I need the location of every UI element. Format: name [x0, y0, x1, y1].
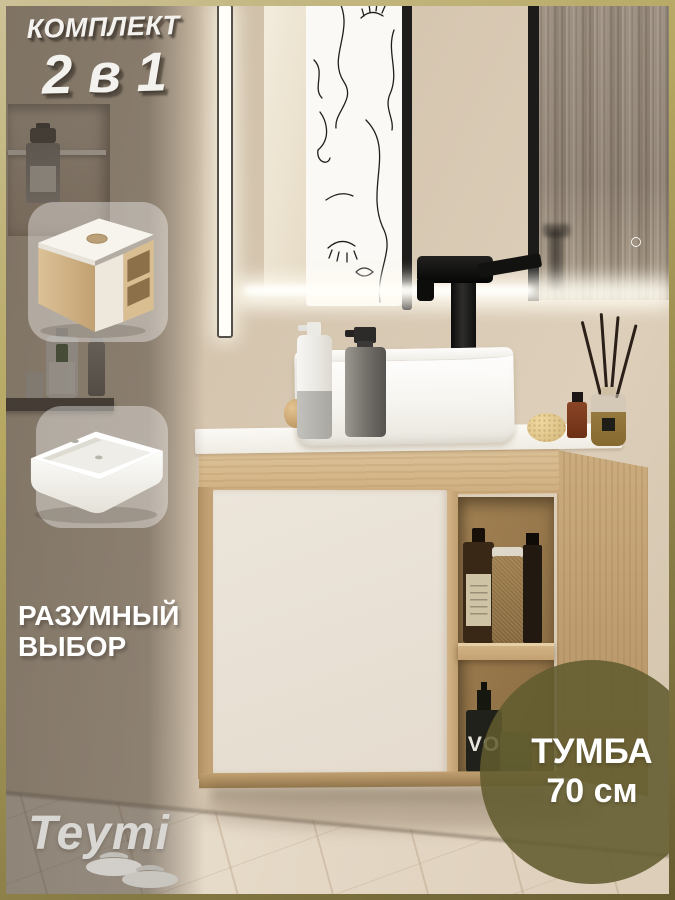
- cabinet-middle-stile: [447, 491, 458, 773]
- vertical-led-lamp: [217, 4, 233, 338]
- brand-logo: Teymi: [28, 806, 170, 861]
- diffuser-label: [602, 418, 615, 431]
- sink-inset-render: [8, 404, 180, 530]
- size-badge-value: 70 см: [546, 772, 637, 811]
- mini-amber-bottle: [567, 402, 587, 438]
- led-backlight-core: [244, 286, 534, 295]
- dispenser-body: [345, 347, 386, 437]
- size-badge-title: ТУМБА: [531, 733, 652, 772]
- touch-sensor-icon: [631, 237, 641, 247]
- loofah-sponge: [527, 413, 566, 442]
- product-image: VO КОМПЛЕКТ 2 в 1: [0, 0, 675, 900]
- shampoo-label: [49, 362, 75, 394]
- cosmetic-tube: [88, 342, 105, 396]
- kit-label-line2: 2 в 1: [6, 38, 204, 107]
- grain-jar: [492, 556, 523, 643]
- amber-bottle-label: [466, 574, 491, 626]
- slim-bottle: [523, 545, 542, 643]
- dropper-neck: [477, 690, 491, 712]
- slipper-strap: [134, 865, 166, 880]
- lineart-panel-frame: [402, 0, 412, 310]
- lineart-faces-drawing: [306, 0, 406, 306]
- lineart-panel: [306, 0, 406, 306]
- lineart-panel-side: [264, 0, 310, 294]
- pump-label-band: [297, 391, 332, 439]
- render-cabinet-door: [95, 254, 123, 332]
- shelf-board: [458, 643, 554, 660]
- pump-head: [307, 322, 321, 336]
- smart-choice-label: РАЗУМНЫЙ ВЫБОР: [18, 600, 208, 663]
- kit-2in1-label: КОМПЛЕКТ 2 в 1: [5, 9, 203, 107]
- white-pump-bottle: [297, 322, 332, 439]
- faucet-spout: [417, 280, 434, 301]
- jar-lid: [30, 128, 56, 143]
- soap-dispenser: [345, 327, 386, 437]
- choice-line1: РАЗУМНЫЙ: [18, 600, 208, 631]
- cabinet-inset-render: [14, 188, 176, 340]
- small-pot: [26, 372, 43, 398]
- choice-line2: ВЫБОР: [18, 631, 208, 662]
- cabinet-door: [213, 490, 447, 774]
